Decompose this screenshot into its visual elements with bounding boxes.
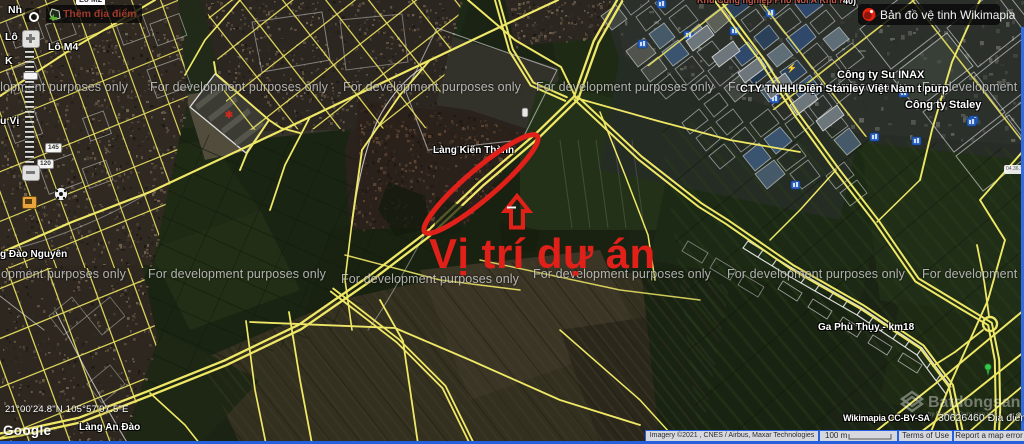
svg-text:Batdongsan: Batdongsan xyxy=(928,394,1020,411)
